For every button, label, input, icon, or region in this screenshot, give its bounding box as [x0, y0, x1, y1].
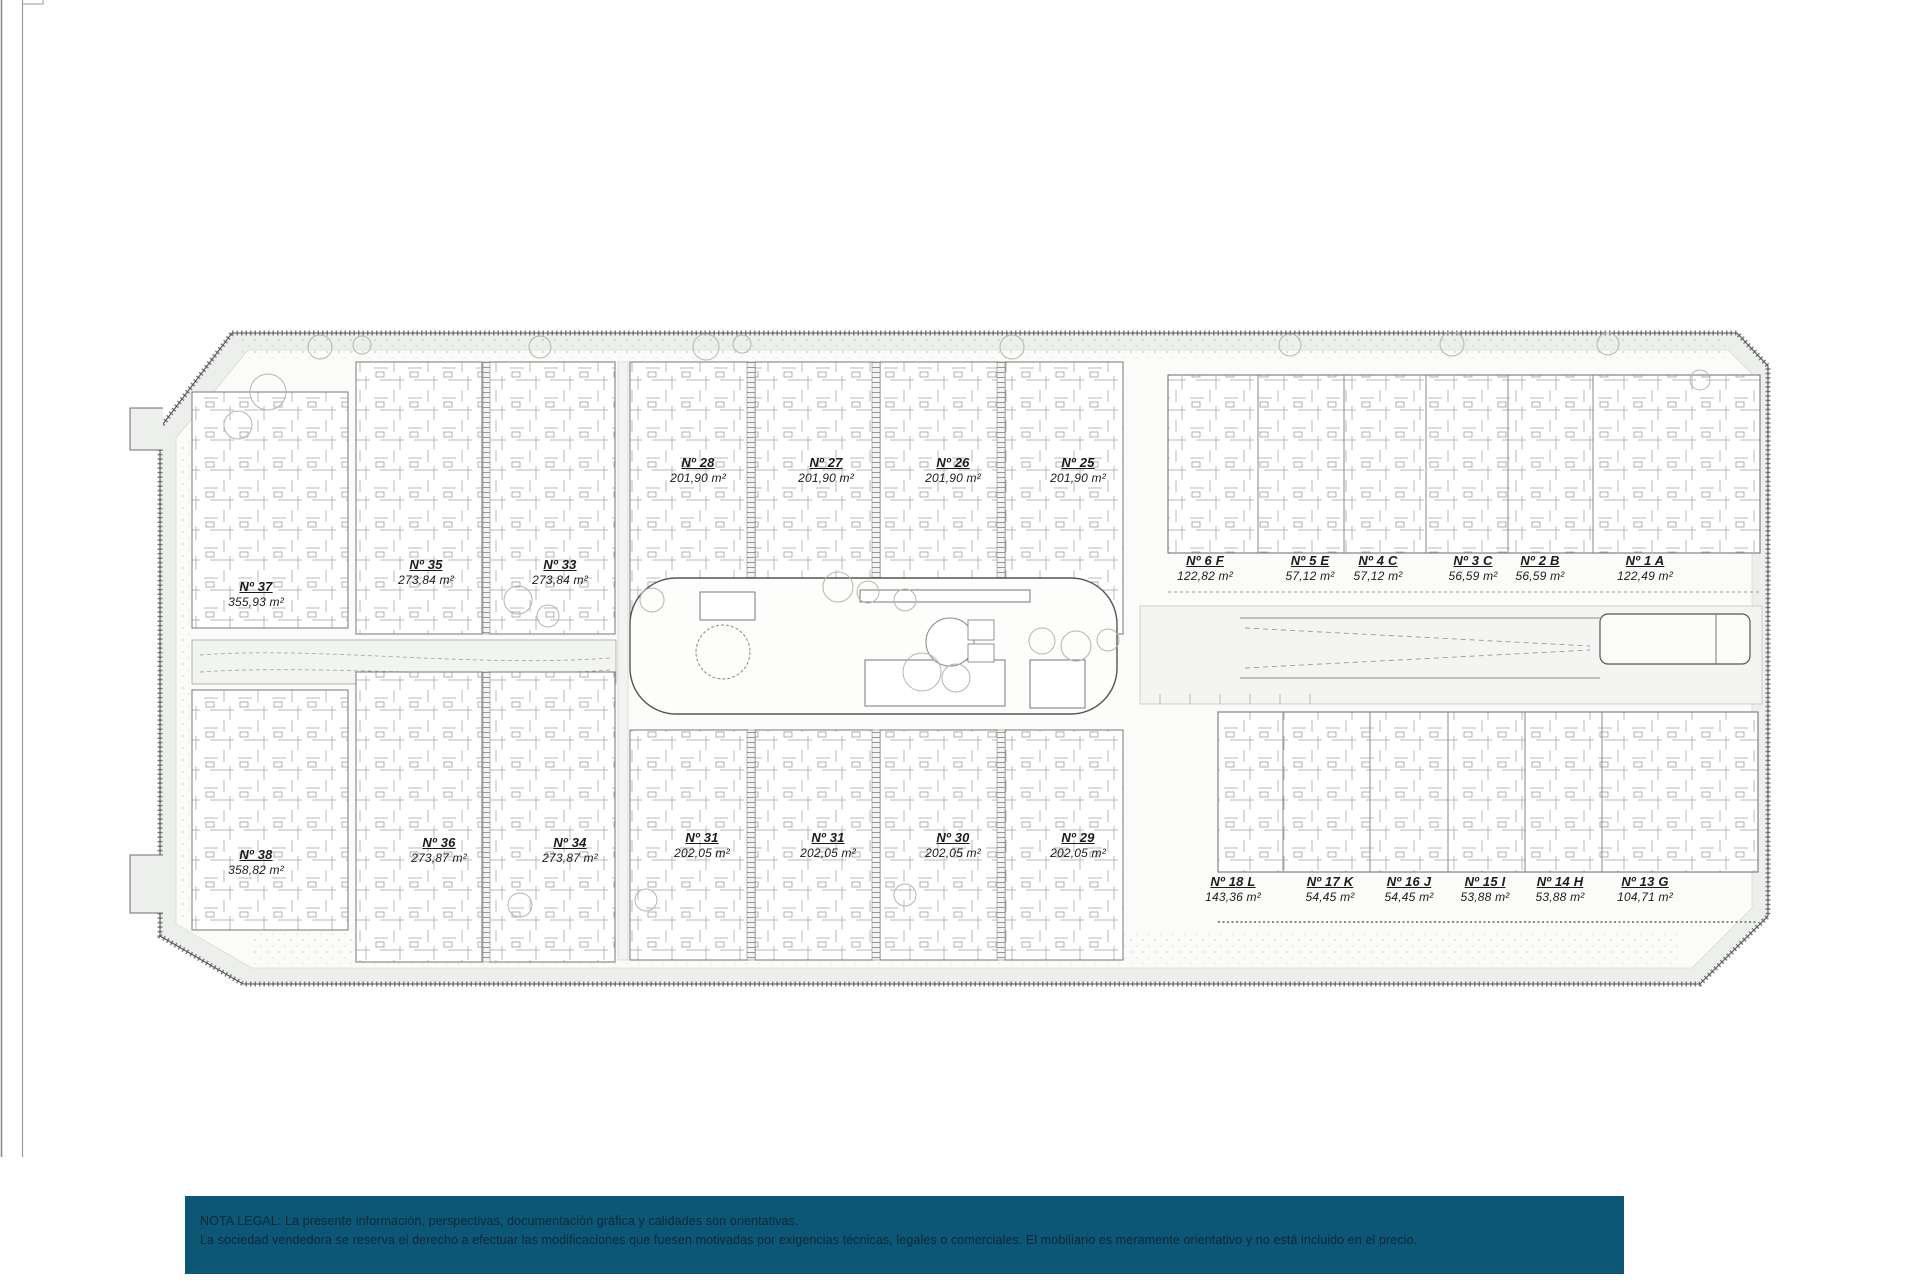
unit-area: 56,59 m²	[1516, 569, 1565, 583]
unit-label-2b: Nº 2 B 56,59 m²	[1516, 553, 1565, 583]
unit-number: Nº 31	[800, 830, 856, 846]
unit-label-1a: Nº 1 A 122,49 m²	[1617, 553, 1673, 583]
unit-number: Nº 18 L	[1205, 874, 1261, 890]
unit-number: Nº 13 G	[1617, 874, 1673, 890]
unit-area: 57,12 m²	[1286, 569, 1335, 583]
unit-number: Nº 25	[1050, 455, 1106, 471]
unit-label-5e: Nº 5 E 57,12 m²	[1286, 553, 1335, 583]
unit-label-26: Nº 26 201,90 m²	[925, 455, 981, 485]
unit-area: 54,45 m²	[1306, 890, 1355, 904]
page-edge-rule	[2, 0, 44, 1157]
unit-number: Nº 38	[228, 847, 284, 863]
truck-symbol	[1600, 614, 1750, 664]
unit-area: 202,05 m²	[674, 846, 730, 860]
unit-area: 143,36 m²	[1205, 890, 1261, 904]
unit-area: 104,71 m²	[1617, 890, 1673, 904]
pool-courtyard	[630, 578, 1117, 714]
unit-label-4c: Nº 4 C 57,12 m²	[1354, 553, 1403, 583]
unit-number: Nº 2 B	[1516, 553, 1565, 569]
unit-area: 202,05 m²	[1050, 846, 1106, 860]
unit-number: Nº 5 E	[1286, 553, 1335, 569]
unit-label-37: Nº 37 355,93 m²	[228, 579, 284, 609]
unit-number: Nº 4 C	[1354, 553, 1403, 569]
unit-number: Nº 35	[398, 557, 454, 573]
unit-number: Nº 27	[798, 455, 854, 471]
unit-label-6f: Nº 6 F 122,82 m²	[1177, 553, 1233, 583]
central-walkway	[618, 362, 628, 960]
legal-line-2: La sociedad vendedora se reserva el dere…	[200, 1231, 1610, 1250]
unit-label-16j: Nº 16 J 54,45 m²	[1385, 874, 1434, 904]
unit-number: Nº 26	[925, 455, 981, 471]
unit-number: Nº 28	[670, 455, 726, 471]
unit-number: Nº 1 A	[1617, 553, 1673, 569]
unit-number: Nº 14 H	[1536, 874, 1585, 890]
unit-area: 201,90 m²	[798, 471, 854, 485]
unit-label-38: Nº 38 358,82 m²	[228, 847, 284, 877]
unit-number: Nº 37	[228, 579, 284, 595]
unit-label-15i: Nº 15 I 53,88 m²	[1461, 874, 1510, 904]
unit-area: 57,12 m²	[1354, 569, 1403, 583]
unit-area: 273,84 m²	[398, 573, 454, 587]
unit-area: 202,05 m²	[925, 846, 981, 860]
unit-label-17k: Nº 17 K 54,45 m²	[1306, 874, 1355, 904]
unit-label-25: Nº 25 201,90 m²	[1050, 455, 1106, 485]
unit-number: Nº 34	[542, 835, 598, 851]
unit-number: Nº 33	[532, 557, 588, 573]
unit-label-36: Nº 36 273,87 m²	[411, 835, 467, 865]
unit-number: Nº 30	[925, 830, 981, 846]
block-villas-bottom-left	[192, 672, 615, 962]
unit-area: 273,87 m²	[542, 851, 598, 865]
unit-area: 122,49 m²	[1617, 569, 1673, 583]
legal-line-1: NOTA LEGAL: La presente información, per…	[200, 1212, 1610, 1231]
unit-number: Nº 36	[411, 835, 467, 851]
unit-area: 201,90 m²	[670, 471, 726, 485]
plan-sheet: Nº 37 355,93 m² Nº 35 273,84 m² Nº 33 27…	[0, 0, 1920, 1280]
unit-area: 358,82 m²	[228, 863, 284, 877]
unit-number: Nº 29	[1050, 830, 1106, 846]
legal-notice-bar: NOTA LEGAL: La presente información, per…	[185, 1196, 1624, 1274]
unit-area: 54,45 m²	[1385, 890, 1434, 904]
unit-label-28: Nº 28 201,90 m²	[670, 455, 726, 485]
unit-label-31a: Nº 31 202,05 m²	[674, 830, 730, 860]
unit-label-31b: Nº 31 202,05 m²	[800, 830, 856, 860]
unit-number: Nº 15 I	[1461, 874, 1510, 890]
unit-area: 202,05 m²	[800, 846, 856, 860]
unit-area: 56,59 m²	[1449, 569, 1498, 583]
unit-area: 53,88 m²	[1461, 890, 1510, 904]
unit-label-33: Nº 33 273,84 m²	[532, 557, 588, 587]
unit-label-14h: Nº 14 H 53,88 m²	[1536, 874, 1585, 904]
unit-label-13g: Nº 13 G 104,71 m²	[1617, 874, 1673, 904]
unit-label-34: Nº 34 273,87 m²	[542, 835, 598, 865]
unit-number: Nº 16 J	[1385, 874, 1434, 890]
site-plan-drawing	[0, 0, 1920, 1280]
unit-number: Nº 31	[674, 830, 730, 846]
unit-label-3c: Nº 3 C 56,59 m²	[1449, 553, 1498, 583]
unit-label-30: Nº 30 202,05 m²	[925, 830, 981, 860]
unit-area: 201,90 m²	[925, 471, 981, 485]
unit-area: 53,88 m²	[1536, 890, 1585, 904]
unit-label-29: Nº 29 202,05 m²	[1050, 830, 1106, 860]
unit-area: 273,84 m²	[532, 573, 588, 587]
unit-number: Nº 17 K	[1306, 874, 1355, 890]
unit-area: 273,87 m²	[411, 851, 467, 865]
unit-area: 122,82 m²	[1177, 569, 1233, 583]
unit-number: Nº 3 C	[1449, 553, 1498, 569]
unit-area: 201,90 m²	[1050, 471, 1106, 485]
unit-number: Nº 6 F	[1177, 553, 1233, 569]
unit-label-27: Nº 27 201,90 m²	[798, 455, 854, 485]
unit-label-18l: Nº 18 L 143,36 m²	[1205, 874, 1261, 904]
unit-label-35: Nº 35 273,84 m²	[398, 557, 454, 587]
unit-area: 355,93 m²	[228, 595, 284, 609]
